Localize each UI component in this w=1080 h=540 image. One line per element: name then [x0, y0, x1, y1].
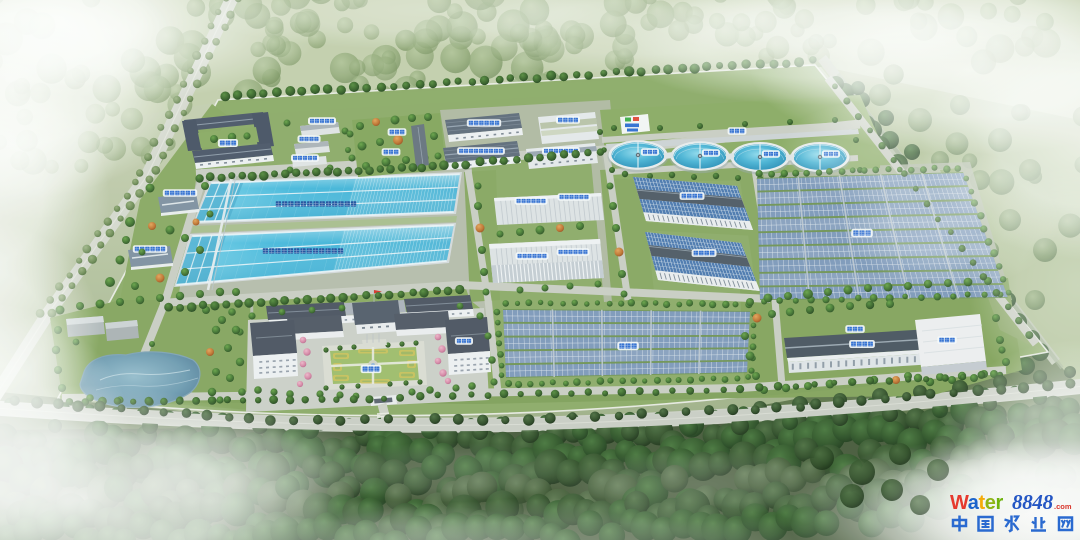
svg-text:8848: 8848 [1012, 490, 1054, 514]
svg-text:.com: .com [1054, 502, 1072, 511]
svg-text:Water: Water [950, 492, 1003, 514]
